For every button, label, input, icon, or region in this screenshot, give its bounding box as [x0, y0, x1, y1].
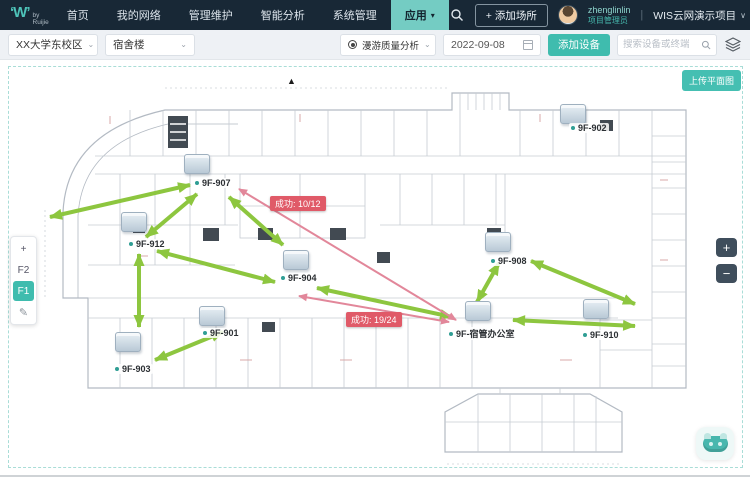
ap-dot-icon [129, 242, 133, 246]
date-value: 2022-09-08 [451, 39, 505, 51]
ap-device-9F-912[interactable] [121, 212, 147, 232]
building-select[interactable]: 宿舍楼 ⌄ [105, 34, 195, 56]
ap-label-9F-901: 9F-901 [201, 328, 241, 338]
ap-label-9F-904: 9F-904 [279, 273, 319, 283]
ap-device-9F-宿管办公室[interactable] [465, 301, 491, 321]
nav-item-智能分析[interactable]: 智能分析 [247, 0, 319, 30]
search-icon[interactable] [701, 39, 711, 51]
ap-label-9F-903: 9F-903 [113, 364, 153, 374]
ap-device-9F-904[interactable] [283, 250, 309, 270]
ap-label-9F-908: 9F-908 [489, 256, 529, 266]
zoom-in-button[interactable]: + [716, 238, 737, 257]
ap-label-9F-907: 9F-907 [193, 178, 233, 188]
roaming-success-badge: 成功: 10/12 [270, 196, 326, 211]
device-search [617, 34, 717, 56]
zoom-controls: + − [716, 238, 737, 283]
chevron-down-icon: ⌄ [180, 40, 187, 49]
avatar[interactable] [558, 5, 578, 25]
calendar-icon [523, 40, 533, 50]
analysis-mode-select[interactable]: 漫游质量分析 ⌄ [340, 34, 436, 56]
floor-item-F1[interactable]: F1 [13, 281, 34, 301]
ap-device-9F-901[interactable] [199, 306, 225, 326]
floor-item-F2[interactable]: F2 [13, 260, 34, 280]
wis-app-window: ‘W’ by Ruijie 首页我的网络管理维护智能分析系统管理应用▾ + 添加… [0, 0, 750, 477]
date-picker[interactable]: 2022-09-08 [443, 34, 541, 56]
layers-icon[interactable] [724, 36, 742, 54]
ap-label-9F-912: 9F-912 [127, 239, 167, 249]
ap-device-9F-907[interactable] [184, 154, 210, 174]
floorplan-edit-button[interactable]: ✎ [13, 302, 34, 322]
search-icon[interactable] [449, 7, 465, 23]
ap-label-9F-902: 9F-902 [569, 123, 609, 133]
roaming-success-badge: 成功: 19/24 [346, 312, 402, 327]
ap-device-9F-908[interactable] [485, 232, 511, 252]
building-value: 宿舍楼 [113, 37, 145, 52]
ap-device-9F-903[interactable] [115, 332, 141, 352]
project-name: WIS云网演示项目 [653, 8, 736, 23]
nav-right-cluster: + 添加场所 zhenglinlin 项目管理员 | WIS云网演示项目 ∨ [449, 0, 750, 30]
add-device-button[interactable]: 添加设备 [548, 34, 610, 56]
filter-toolbar: XX大学东校区 ⌄ 宿舍楼 ⌄ 漫游质量分析 ⌄ 2022-09-08 添加设备 [0, 30, 750, 60]
analysis-mode-icon [348, 40, 357, 49]
nav-item-我的网络[interactable]: 我的网络 [103, 0, 175, 30]
zoom-out-button[interactable]: − [716, 264, 737, 283]
logo-mark: ‘W’ [10, 4, 30, 21]
ap-dot-icon [195, 181, 199, 185]
ap-device-9F-902[interactable] [560, 104, 586, 124]
ap-label-9F-宿管办公室: 9F-宿管办公室 [447, 327, 517, 340]
ap-dot-icon [449, 332, 453, 336]
ap-dot-icon [571, 126, 575, 130]
user-role: 项目管理员 [588, 16, 631, 25]
project-selector[interactable]: WIS云网演示项目 ∨ [653, 8, 746, 23]
device-search-input[interactable] [623, 39, 698, 50]
assistant-robot-icon[interactable] [696, 427, 734, 460]
ap-label-9F-910: 9F-910 [581, 330, 621, 340]
floorplan-drawing [0, 60, 750, 475]
nav-divider: | [640, 9, 643, 21]
nav-item-管理维护[interactable]: 管理维护 [175, 0, 247, 30]
campus-value: XX大学东校区 [16, 37, 83, 52]
upload-floorplan-button[interactable]: 上传平面图 [682, 70, 741, 91]
logo-sub: by Ruijie [33, 12, 49, 26]
ap-dot-icon [203, 331, 207, 335]
app-logo[interactable]: ‘W’ by Ruijie [10, 4, 49, 26]
ap-dot-icon [491, 259, 495, 263]
ap-dot-icon [583, 333, 587, 337]
floorplan-canvas[interactable]: ▲ 9F-9029F-9079F-9129F-9049F-9089F-9019F… [0, 60, 750, 475]
chevron-down-icon: ⌄ [424, 40, 431, 49]
ap-dot-icon [281, 276, 285, 280]
floor-selector: +F2F1✎ [10, 236, 37, 325]
nav-item-应用[interactable]: 应用▾ [391, 0, 449, 30]
user-name: zhenglinlin [588, 5, 631, 15]
user-info[interactable]: zhenglinlin 项目管理员 [588, 5, 631, 25]
nav-item-首页[interactable]: 首页 [53, 0, 103, 30]
ap-device-9F-910[interactable] [583, 299, 609, 319]
add-place-button[interactable]: + 添加场所 [475, 4, 548, 27]
chevron-down-icon: ∨ [740, 11, 746, 20]
ap-dot-icon [115, 367, 119, 371]
top-navbar: ‘W’ by Ruijie 首页我的网络管理维护智能分析系统管理应用▾ + 添加… [0, 0, 750, 30]
nav-item-系统管理[interactable]: 系统管理 [319, 0, 391, 30]
analysis-value: 漫游质量分析 [362, 38, 419, 52]
floor-add-button[interactable]: + [13, 239, 34, 259]
robot-head [703, 436, 728, 452]
chevron-down-icon: ⌄ [88, 40, 95, 49]
campus-select[interactable]: XX大学东校区 ⌄ [8, 34, 98, 56]
nav-menu: 首页我的网络管理维护智能分析系统管理应用▾ [53, 0, 449, 30]
